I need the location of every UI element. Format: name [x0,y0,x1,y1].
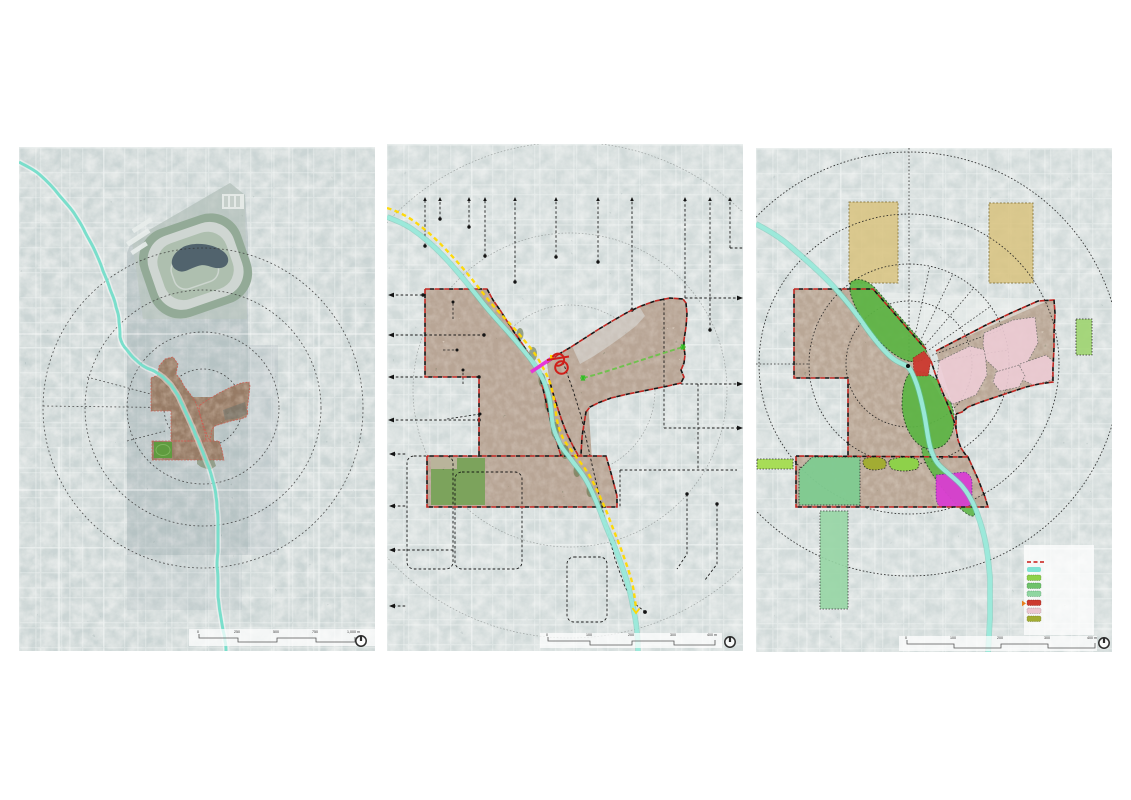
svg-text:100: 100 [586,633,592,637]
svg-text:400 m: 400 m [707,633,717,637]
svg-text:250: 250 [234,630,240,634]
svg-text:0: 0 [197,630,199,634]
svg-text:0: 0 [546,633,548,637]
svg-text:200: 200 [997,636,1003,640]
svg-text:200: 200 [628,633,634,637]
svg-text:1,000 m: 1,000 m [347,630,360,634]
svg-text:300: 300 [1044,636,1050,640]
svg-text:500: 500 [273,630,279,634]
svg-text:750: 750 [312,630,318,634]
svg-text:400 m: 400 m [1087,636,1097,640]
svg-text:0: 0 [905,636,907,640]
svg-text:300: 300 [670,633,676,637]
svg-text:100: 100 [950,636,956,640]
